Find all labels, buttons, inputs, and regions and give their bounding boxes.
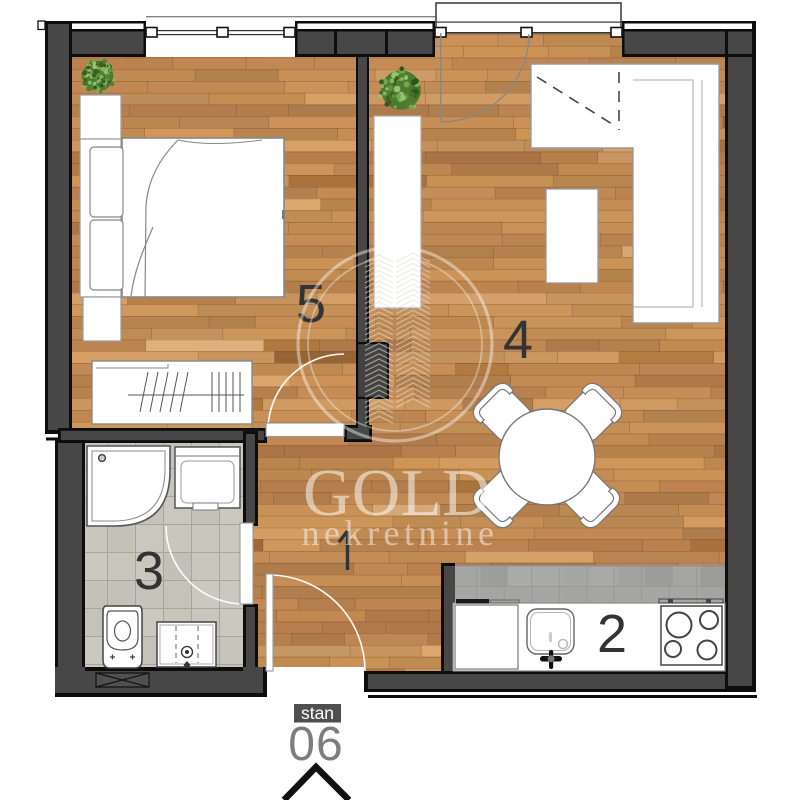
svg-text:nekretnine: nekretnine [302, 513, 499, 553]
svg-text:3: 3 [134, 541, 164, 601]
svg-text:2: 2 [597, 604, 627, 664]
svg-text:4: 4 [503, 310, 533, 370]
